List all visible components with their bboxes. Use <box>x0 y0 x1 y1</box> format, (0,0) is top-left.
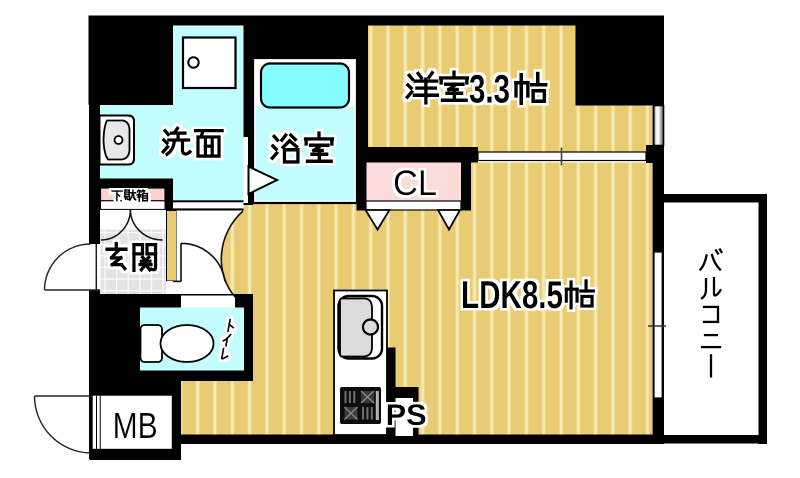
svg-text:MB: MB <box>113 405 158 446</box>
svg-text:3.3: 3.3 <box>469 68 510 112</box>
svg-text:LDK8.5: LDK8.5 <box>461 274 563 317</box>
svg-text:CL: CL <box>393 164 437 203</box>
svg-text:PS: PS <box>386 399 427 432</box>
